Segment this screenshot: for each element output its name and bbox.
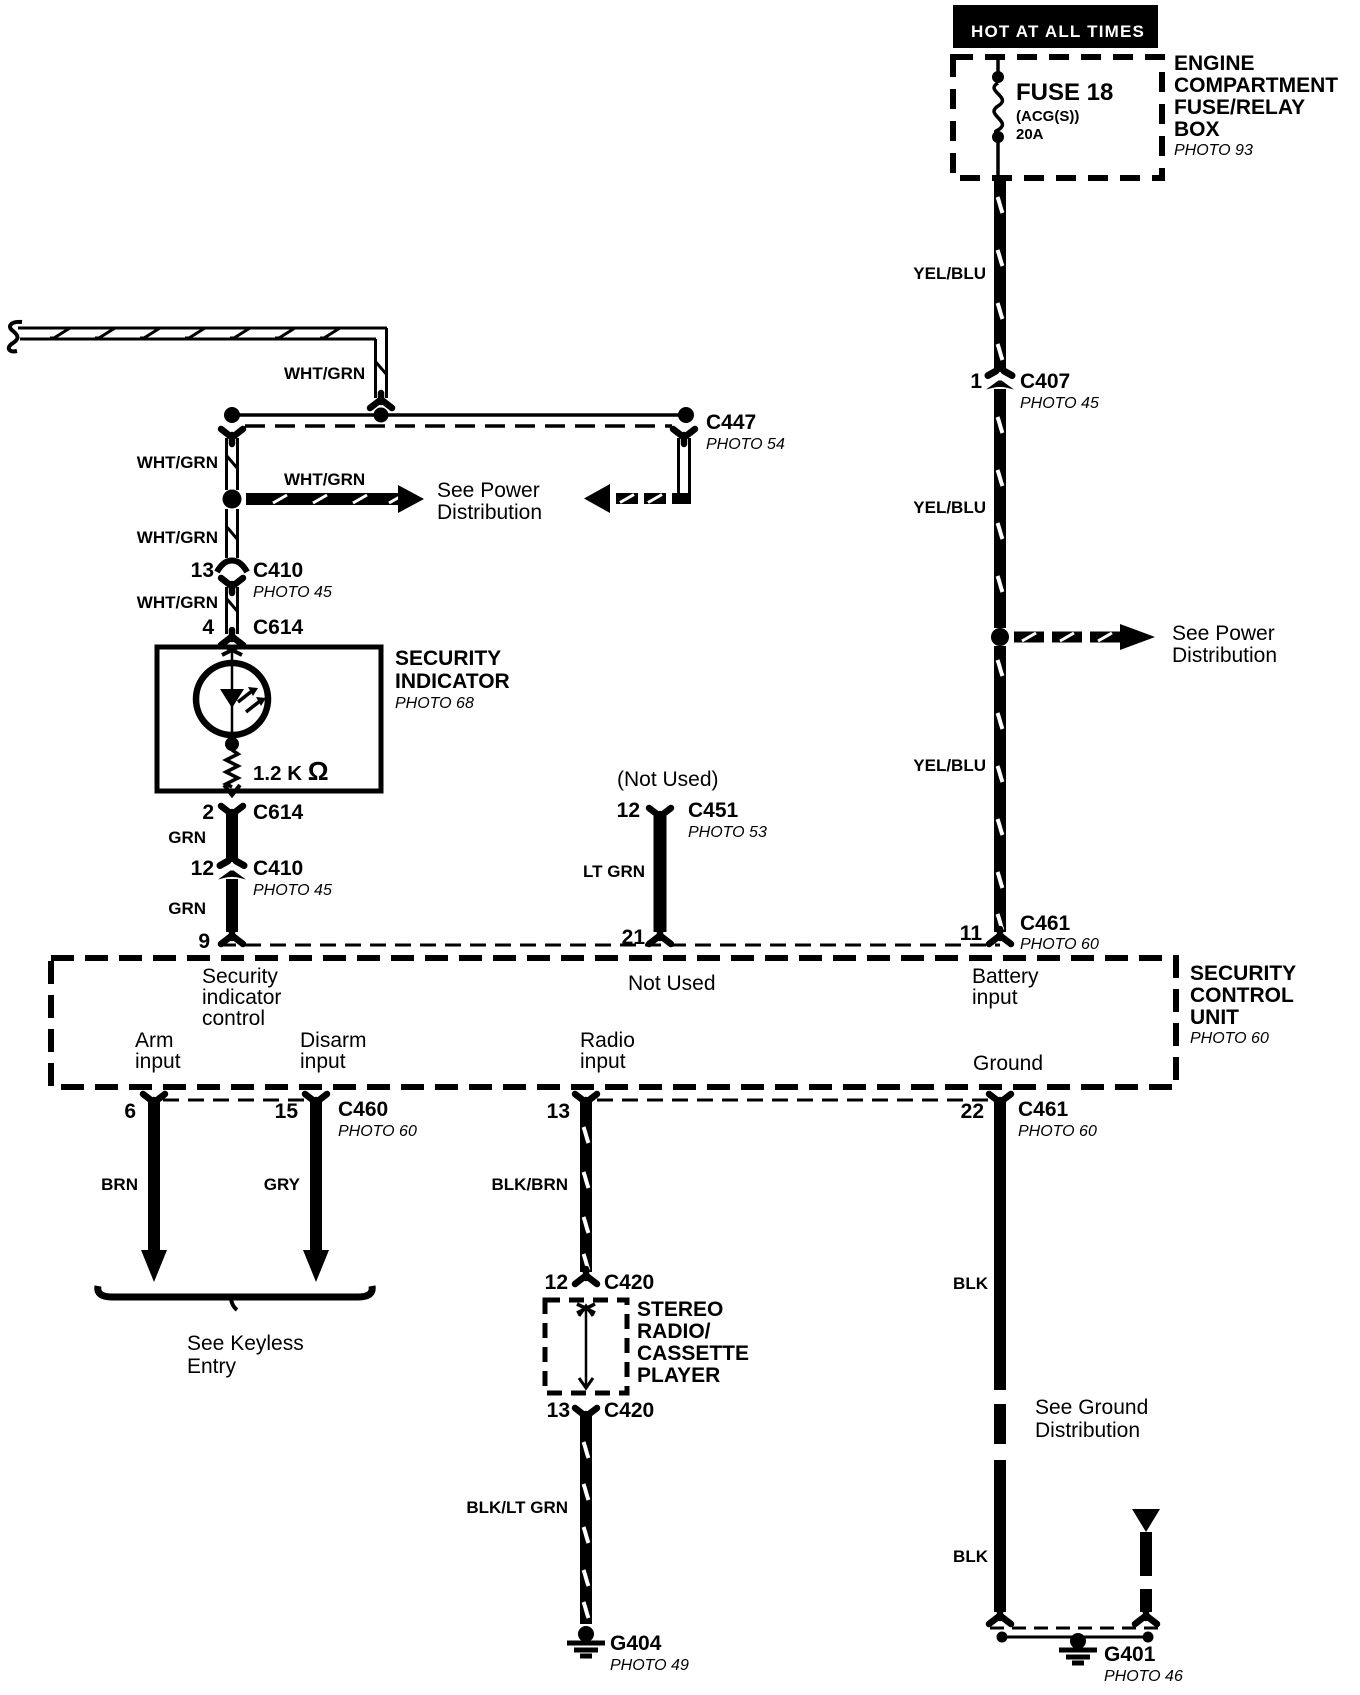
svg-text:indicator: indicator (202, 986, 281, 1009)
svg-text:Not Used: Not Used (628, 972, 716, 995)
svg-text:Distribution: Distribution (1035, 1419, 1140, 1442)
svg-text:WHT/GRN: WHT/GRN (137, 593, 218, 612)
svg-text:PHOTO 93: PHOTO 93 (1174, 142, 1253, 159)
svg-text:WHT/GRN: WHT/GRN (137, 528, 218, 547)
svg-text:12: 12 (617, 799, 640, 822)
svg-text:C407: C407 (1020, 370, 1070, 393)
svg-text:C410: C410 (253, 559, 303, 582)
svg-text:4: 4 (202, 616, 214, 639)
svg-text:(ACG(S)): (ACG(S)) (1016, 108, 1079, 125)
svg-text:FUSE/RELAY: FUSE/RELAY (1174, 96, 1305, 119)
svg-text:C614: C614 (253, 616, 304, 639)
svg-text:input: input (300, 1050, 346, 1073)
svg-text:SECURITY: SECURITY (395, 647, 501, 670)
svg-text:Arm: Arm (135, 1029, 174, 1052)
svg-text:Ground: Ground (973, 1052, 1043, 1075)
svg-text:PHOTO 60: PHOTO 60 (1020, 936, 1099, 953)
svg-text:20A: 20A (1016, 126, 1044, 143)
svg-text:15: 15 (275, 1100, 299, 1123)
svg-text:YEL/BLU: YEL/BLU (913, 756, 986, 775)
svg-text:input: input (135, 1050, 181, 1073)
svg-text:GRN: GRN (168, 899, 206, 918)
svg-text:PHOTO 68: PHOTO 68 (395, 695, 474, 712)
svg-text:PHOTO 54: PHOTO 54 (706, 436, 785, 453)
svg-text:input: input (972, 986, 1018, 1009)
svg-text:12: 12 (191, 857, 214, 880)
svg-text:C461: C461 (1018, 1098, 1069, 1121)
svg-text:PHOTO 46: PHOTO 46 (1104, 1668, 1183, 1685)
svg-text:SECURITY: SECURITY (1190, 962, 1296, 985)
svg-text:Radio: Radio (580, 1029, 635, 1052)
svg-text:PHOTO 60: PHOTO 60 (1190, 1030, 1269, 1047)
svg-text:HOT AT ALL TIMES: HOT AT ALL TIMES (971, 22, 1145, 41)
svg-text:C410: C410 (253, 857, 303, 880)
svg-text:Distribution: Distribution (1172, 644, 1277, 667)
svg-text:C451: C451 (688, 799, 739, 822)
svg-text:PHOTO 49: PHOTO 49 (610, 1657, 689, 1674)
svg-text:PHOTO 60: PHOTO 60 (1018, 1123, 1097, 1140)
svg-text:13: 13 (547, 1100, 570, 1123)
svg-text:WHT/GRN: WHT/GRN (137, 453, 218, 472)
svg-text:C447: C447 (706, 411, 756, 434)
svg-text:C460: C460 (338, 1098, 388, 1121)
svg-text:See Power: See Power (437, 479, 540, 502)
svg-text:1.2 K Ω: 1.2 K Ω (253, 756, 329, 786)
svg-text:BLK/BRN: BLK/BRN (492, 1175, 569, 1194)
svg-text:FUSE 18: FUSE 18 (1016, 79, 1113, 106)
svg-text:PHOTO 60: PHOTO 60 (338, 1123, 417, 1140)
svg-text:BRN: BRN (101, 1175, 138, 1194)
svg-text:Battery: Battery (972, 965, 1039, 988)
svg-text:GRY: GRY (264, 1175, 301, 1194)
svg-text:See Ground: See Ground (1035, 1396, 1148, 1419)
svg-text:9: 9 (198, 930, 210, 953)
svg-text:C461: C461 (1020, 912, 1071, 935)
svg-text:PHOTO 45: PHOTO 45 (253, 882, 332, 899)
svg-text:PLAYER: PLAYER (637, 1364, 720, 1387)
svg-text:BLK/LT GRN: BLK/LT GRN (466, 1498, 568, 1517)
svg-text:(Not Used): (Not Used) (617, 768, 719, 791)
svg-text:G401: G401 (1104, 1643, 1156, 1666)
svg-text:PHOTO 45: PHOTO 45 (253, 584, 332, 601)
svg-text:PHOTO 45: PHOTO 45 (1020, 395, 1099, 412)
svg-text:input: input (580, 1050, 626, 1073)
svg-text:UNIT: UNIT (1190, 1006, 1239, 1029)
svg-text:Distribution: Distribution (437, 501, 542, 524)
svg-text:YEL/BLU: YEL/BLU (913, 264, 986, 283)
svg-text:C420: C420 (604, 1399, 654, 1422)
svg-text:COMPARTMENT: COMPARTMENT (1174, 74, 1338, 97)
svg-text:BOX: BOX (1174, 118, 1220, 141)
svg-text:13: 13 (547, 1399, 570, 1422)
svg-text:See Power: See Power (1172, 622, 1275, 645)
svg-text:CONTROL: CONTROL (1190, 984, 1294, 1007)
svg-text:RADIO/: RADIO/ (637, 1320, 711, 1343)
svg-text:Disarm: Disarm (300, 1029, 367, 1052)
svg-text:C420: C420 (604, 1271, 654, 1294)
svg-text:G404: G404 (610, 1632, 662, 1655)
svg-text:2: 2 (202, 801, 214, 824)
svg-text:STEREO: STEREO (637, 1298, 723, 1321)
svg-text:C614: C614 (253, 801, 304, 824)
svg-text:WHT/GRN: WHT/GRN (284, 470, 365, 489)
svg-text:ENGINE: ENGINE (1174, 52, 1255, 75)
svg-text:13: 13 (191, 559, 214, 582)
svg-text:GRN: GRN (168, 828, 206, 847)
svg-text:BLK: BLK (953, 1547, 989, 1566)
svg-text:22: 22 (961, 1100, 984, 1123)
svg-text:CASSETTE: CASSETTE (637, 1342, 749, 1365)
svg-text:INDICATOR: INDICATOR (395, 670, 510, 693)
svg-text:11: 11 (960, 922, 983, 945)
svg-text:PHOTO 53: PHOTO 53 (688, 824, 767, 841)
svg-text:6: 6 (124, 1100, 136, 1123)
svg-text:YEL/BLU: YEL/BLU (913, 498, 986, 517)
svg-text:See Keyless: See Keyless (187, 1332, 304, 1355)
svg-text:WHT/GRN: WHT/GRN (284, 364, 365, 383)
svg-text:Entry: Entry (187, 1355, 237, 1378)
svg-text:1: 1 (970, 370, 982, 393)
svg-text:control: control (202, 1007, 265, 1030)
svg-text:BLK: BLK (953, 1274, 989, 1293)
svg-text:Security: Security (202, 965, 278, 988)
svg-text:LT GRN: LT GRN (583, 862, 645, 881)
svg-text:12: 12 (545, 1271, 568, 1294)
